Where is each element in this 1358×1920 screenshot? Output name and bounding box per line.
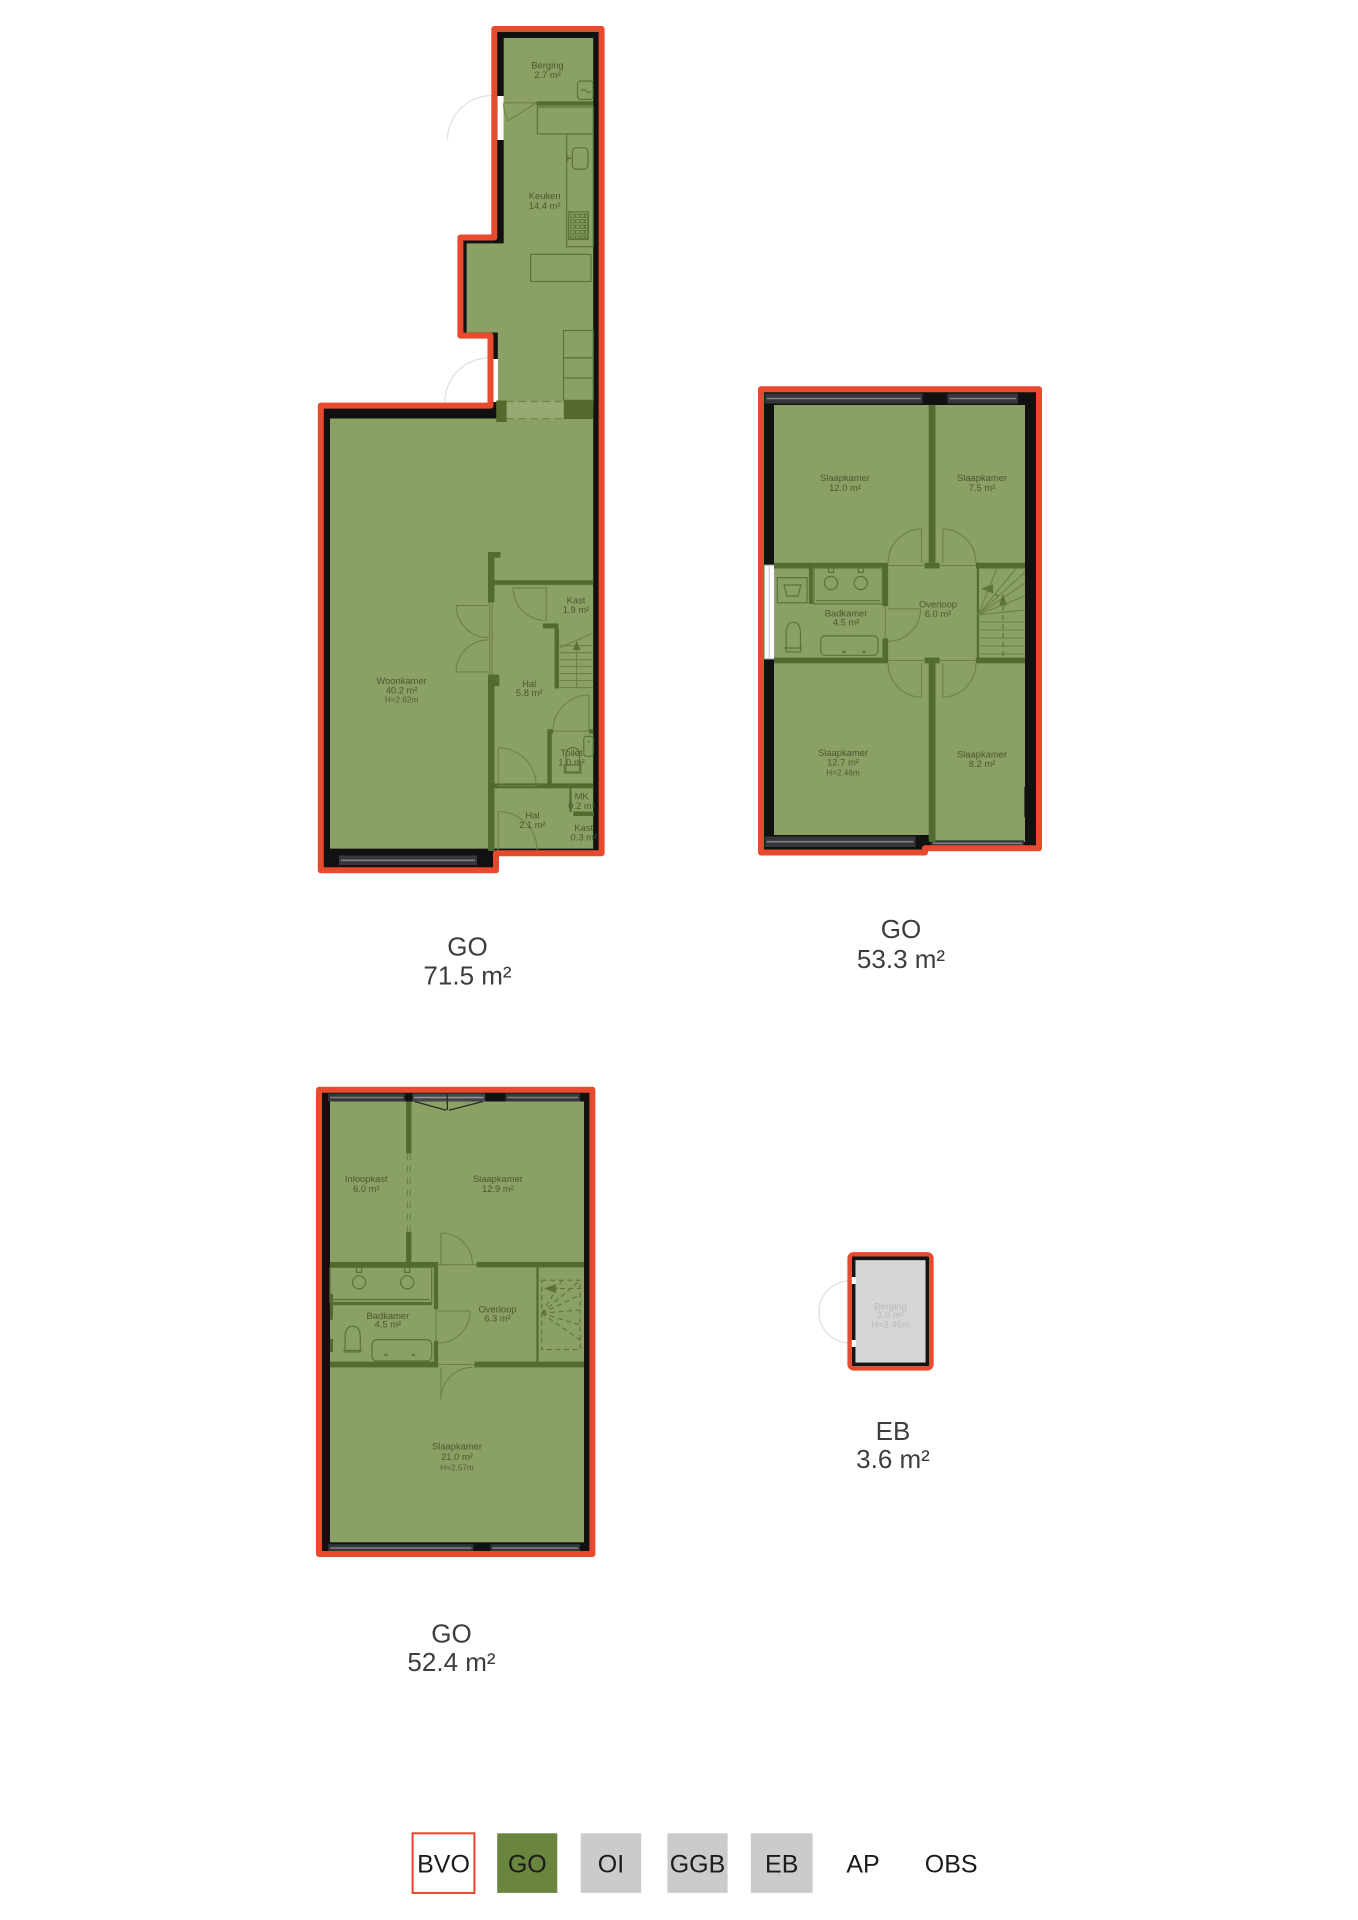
svg-text:OI: OI	[598, 1851, 624, 1879]
svg-text:GGB: GGB	[670, 1851, 726, 1879]
svg-text:40.2 m²: 40.2 m²	[386, 685, 418, 696]
svg-text:8.2 m²: 8.2 m²	[969, 758, 996, 769]
svg-text:12.9 m²: 12.9 m²	[482, 1183, 514, 1194]
svg-text:H=2.46m: H=2.46m	[826, 768, 860, 777]
svg-text:BVO: BVO	[417, 1851, 470, 1879]
svg-text:4.5 m²: 4.5 m²	[833, 617, 860, 628]
svg-text:0.2 m²: 0.2 m²	[568, 800, 595, 811]
svg-text:14.4 m²: 14.4 m²	[529, 200, 561, 211]
svg-text:12.7 m²: 12.7 m²	[827, 757, 859, 768]
svg-text:H=2.57m: H=2.57m	[440, 1464, 474, 1473]
svg-text:21.0 m²: 21.0 m²	[441, 1451, 473, 1462]
svg-text:AP: AP	[846, 1851, 879, 1879]
svg-text:EB: EB	[765, 1851, 798, 1879]
svg-text:52.4 m²: 52.4 m²	[407, 1647, 495, 1677]
svg-text:71.5 m²: 71.5 m²	[423, 961, 511, 991]
svg-text:1.9 m²: 1.9 m²	[563, 604, 590, 615]
svg-text:1.0 m²: 1.0 m²	[558, 756, 585, 767]
svg-text:2.1 m²: 2.1 m²	[519, 819, 546, 830]
svg-text:12.0 m²: 12.0 m²	[829, 482, 861, 493]
svg-text:H=2.46m: H=2.46m	[871, 1320, 910, 1331]
svg-text:6.3 m²: 6.3 m²	[484, 1313, 511, 1324]
svg-text:7.5 m²: 7.5 m²	[969, 482, 996, 493]
svg-text:GO: GO	[447, 932, 487, 962]
svg-text:4.5 m²: 4.5 m²	[375, 1319, 402, 1330]
svg-text:6.0 m²: 6.0 m²	[925, 608, 952, 619]
svg-text:3.6 m²: 3.6 m²	[856, 1444, 930, 1474]
svg-text:6.0 m²: 6.0 m²	[353, 1183, 380, 1194]
svg-text:53.3 m²: 53.3 m²	[857, 944, 945, 974]
svg-text:EB: EB	[876, 1416, 911, 1446]
svg-text:GO: GO	[881, 914, 921, 944]
svg-text:2.7 m²: 2.7 m²	[534, 69, 561, 80]
svg-text:GO: GO	[431, 1619, 471, 1649]
svg-text:0.3 m²: 0.3 m²	[571, 832, 598, 843]
svg-text:OBS: OBS	[925, 1851, 978, 1879]
svg-text:H=2.62m: H=2.62m	[385, 696, 419, 705]
svg-text:5.8 m²: 5.8 m²	[516, 687, 543, 698]
svg-text:GO: GO	[508, 1851, 547, 1879]
